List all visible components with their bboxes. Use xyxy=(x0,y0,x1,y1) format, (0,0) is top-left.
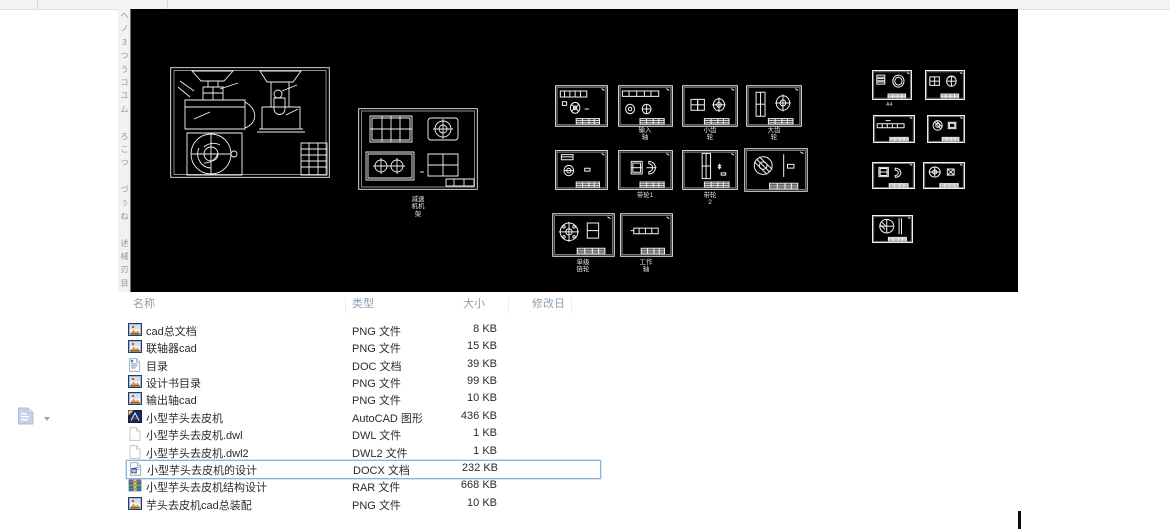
file-icon-png xyxy=(128,375,142,389)
file-type: AutoCAD 图形 xyxy=(352,410,423,426)
tool-glyph: 述 xyxy=(118,237,131,250)
thumb-label-pulley2: 带轮 2 xyxy=(704,192,717,207)
thumb-label-pulley1: 带轮1 xyxy=(637,192,654,199)
thumb-motor xyxy=(555,150,608,190)
thumb-label-big_gear: 大齿 轮 xyxy=(768,127,781,142)
file-type: DOCX 文档 xyxy=(353,462,410,478)
file-row[interactable]: 小型芋头去皮机.dwlDWL 文件1 KB xyxy=(126,426,599,443)
file-type: PNG 文件 xyxy=(352,375,401,391)
file-name: 联轴器cad xyxy=(146,340,197,356)
file-row[interactable]: 联轴器cadPNG 文件15 KB xyxy=(126,339,599,356)
file-type: DOC 文档 xyxy=(352,358,402,374)
file-row[interactable]: 小型芋头去皮机AutoCAD 图形436 KB xyxy=(126,409,599,426)
file-icon-blank xyxy=(128,445,142,459)
file-size: 8 KB xyxy=(416,323,497,335)
tool-glyph: 目 xyxy=(118,277,131,290)
file-type: DWL2 文件 xyxy=(352,445,408,461)
tool-glyph: ヘ xyxy=(118,9,131,22)
column-header-date-modified[interactable]: 修改日期 xyxy=(532,298,570,312)
file-size: 15 KB xyxy=(416,340,497,352)
thumb-input-shaft xyxy=(618,85,673,127)
file-name: 芋头去皮机cad总装配 xyxy=(146,497,252,513)
thumb-work-shaft xyxy=(620,213,673,257)
file-row[interactable]: 小型芋头去皮机结构设计RAR 文件668 KB xyxy=(126,478,599,495)
tool-glyph xyxy=(118,116,131,129)
file-size: 99 KB xyxy=(416,375,497,387)
thumb-label-small_gear: 小齿 轮 xyxy=(704,127,717,142)
file-name: 小型芋头去皮机.dwl xyxy=(146,427,243,443)
topbar-divider xyxy=(37,0,38,9)
tool-glyph: ノ xyxy=(118,22,131,35)
tool-glyph xyxy=(118,170,131,183)
thumb-part-4 xyxy=(927,115,965,143)
thumb-sub-assembly xyxy=(555,85,608,127)
header-separator xyxy=(345,298,346,313)
tool-glyph: ぅ xyxy=(118,196,131,209)
column-header-name[interactable]: 名称 xyxy=(133,298,333,312)
file-name: 小型芋头去皮机的设计 xyxy=(147,462,257,478)
file-size: 39 KB xyxy=(416,358,497,370)
file-name: cad总文档 xyxy=(146,323,197,339)
file-type: PNG 文件 xyxy=(352,497,401,513)
file-icon-png xyxy=(128,497,142,511)
column-header-type[interactable]: 类型 xyxy=(352,298,442,312)
dropdown-caret-icon xyxy=(44,417,50,421)
file-icon-png xyxy=(128,392,142,406)
thumb-part-5 xyxy=(872,162,915,189)
tool-glyph: つ xyxy=(118,49,131,62)
thumb-part-7 xyxy=(872,215,913,243)
thumb-part-6 xyxy=(923,162,965,189)
file-size: 1 KB xyxy=(416,427,497,439)
reducer-frame-drawing xyxy=(358,108,478,190)
tool-glyph: ね xyxy=(118,210,131,223)
screen: { "cad": { "labels": { "drawing2": "减速\n… xyxy=(0,0,1170,530)
tool-glyph: 刃 xyxy=(118,263,131,276)
drawing-label-a4: A4 xyxy=(886,103,893,109)
file-icon-blank xyxy=(128,427,142,441)
thumb-pulley-1 xyxy=(618,150,673,190)
file-size: 1 KB xyxy=(416,445,497,457)
thumb-part-3 xyxy=(873,115,915,143)
cad-preview-canvas: 减速 机机 架 输入 轴小齿 轮大齿 轮带轮1带轮 2单级 链轮工作 轴 A4 xyxy=(131,9,1018,292)
file-name: 小型芋头去皮机.dwl2 xyxy=(146,445,249,461)
floating-document-button[interactable] xyxy=(16,407,58,429)
file-row[interactable]: 设计书目录PNG 文件99 KB xyxy=(126,374,599,391)
file-row[interactable]: 小型芋头去皮机.dwl2DWL2 文件1 KB xyxy=(126,444,599,461)
tool-glyph: ユ xyxy=(118,89,131,102)
thumb-label-input_shaft: 输入 轴 xyxy=(639,127,652,142)
file-type: DWL 文件 xyxy=(352,427,401,443)
file-icon-docx xyxy=(129,462,143,476)
file-name: 小型芋头去皮机结构设计 xyxy=(146,479,267,495)
file-size: 436 KB xyxy=(416,410,497,422)
document-icon xyxy=(16,407,36,425)
tool-glyph: づ xyxy=(118,183,131,196)
thumb-part-2 xyxy=(925,70,965,100)
header-separator xyxy=(571,298,572,313)
thumb-pulley-2 xyxy=(682,150,738,190)
text-cursor xyxy=(1018,511,1021,529)
tool-glyph: 3 xyxy=(118,36,131,49)
file-size: 232 KB xyxy=(417,462,498,474)
assembly-drawing xyxy=(170,67,330,178)
tool-glyph: 械 xyxy=(118,250,131,263)
file-size: 10 KB xyxy=(416,392,497,404)
side-tool-strip: ヘノ3つうコユムろこつづぅね述械刃目 xyxy=(118,9,131,292)
tool-glyph: ろ xyxy=(118,130,131,143)
tool-glyph: う xyxy=(118,63,131,76)
file-row[interactable]: 目录DOC 文档39 KB xyxy=(126,357,599,374)
file-icon-png xyxy=(128,323,142,337)
topbar-divider xyxy=(167,0,168,9)
thumb-part-1 xyxy=(872,70,912,100)
file-icon-doc xyxy=(128,358,142,372)
file-name: 小型芋头去皮机 xyxy=(146,410,223,426)
thumb-sprocket xyxy=(552,213,615,257)
file-row[interactable]: cad总文档PNG 文件8 KB xyxy=(126,322,599,339)
thumb-big-gear xyxy=(746,85,802,127)
file-icon-dwg xyxy=(128,410,142,424)
file-type: PNG 文件 xyxy=(352,340,401,356)
file-icon-rar xyxy=(128,479,142,493)
file-size: 668 KB xyxy=(416,479,497,491)
file-name: 设计书目录 xyxy=(146,375,201,391)
column-header-size[interactable]: 大小 xyxy=(463,298,508,312)
file-size: 10 KB xyxy=(416,497,497,509)
file-row[interactable]: 芋头去皮机cad总装配PNG 文件10 KB xyxy=(126,496,599,513)
tool-glyph xyxy=(118,223,131,236)
file-type: RAR 文件 xyxy=(352,479,400,495)
file-type: PNG 文件 xyxy=(352,392,401,408)
tool-glyph: つ xyxy=(118,156,131,169)
thumb-label-work_shaft: 工作 轴 xyxy=(640,259,653,274)
header-separator xyxy=(508,298,509,313)
drawing-label-reducer-frame: 减速 机机 架 xyxy=(412,196,425,218)
file-type: PNG 文件 xyxy=(352,323,401,339)
tool-glyph: ム xyxy=(118,103,131,116)
tool-glyph: こ xyxy=(118,143,131,156)
thumb-label-sprocket: 单级 链轮 xyxy=(577,259,590,274)
tool-glyph: コ xyxy=(118,76,131,89)
file-row[interactable]: 小型芋头去皮机的设计DOCX 文档232 KB xyxy=(126,460,601,479)
file-row[interactable]: 输出轴cadPNG 文件10 KB xyxy=(126,391,599,408)
thumb-small-gear xyxy=(682,85,738,127)
file-name: 输出轴cad xyxy=(146,392,197,408)
file-icon-png xyxy=(128,340,142,354)
thumb-wheel xyxy=(744,148,808,192)
file-name: 目录 xyxy=(146,358,168,374)
